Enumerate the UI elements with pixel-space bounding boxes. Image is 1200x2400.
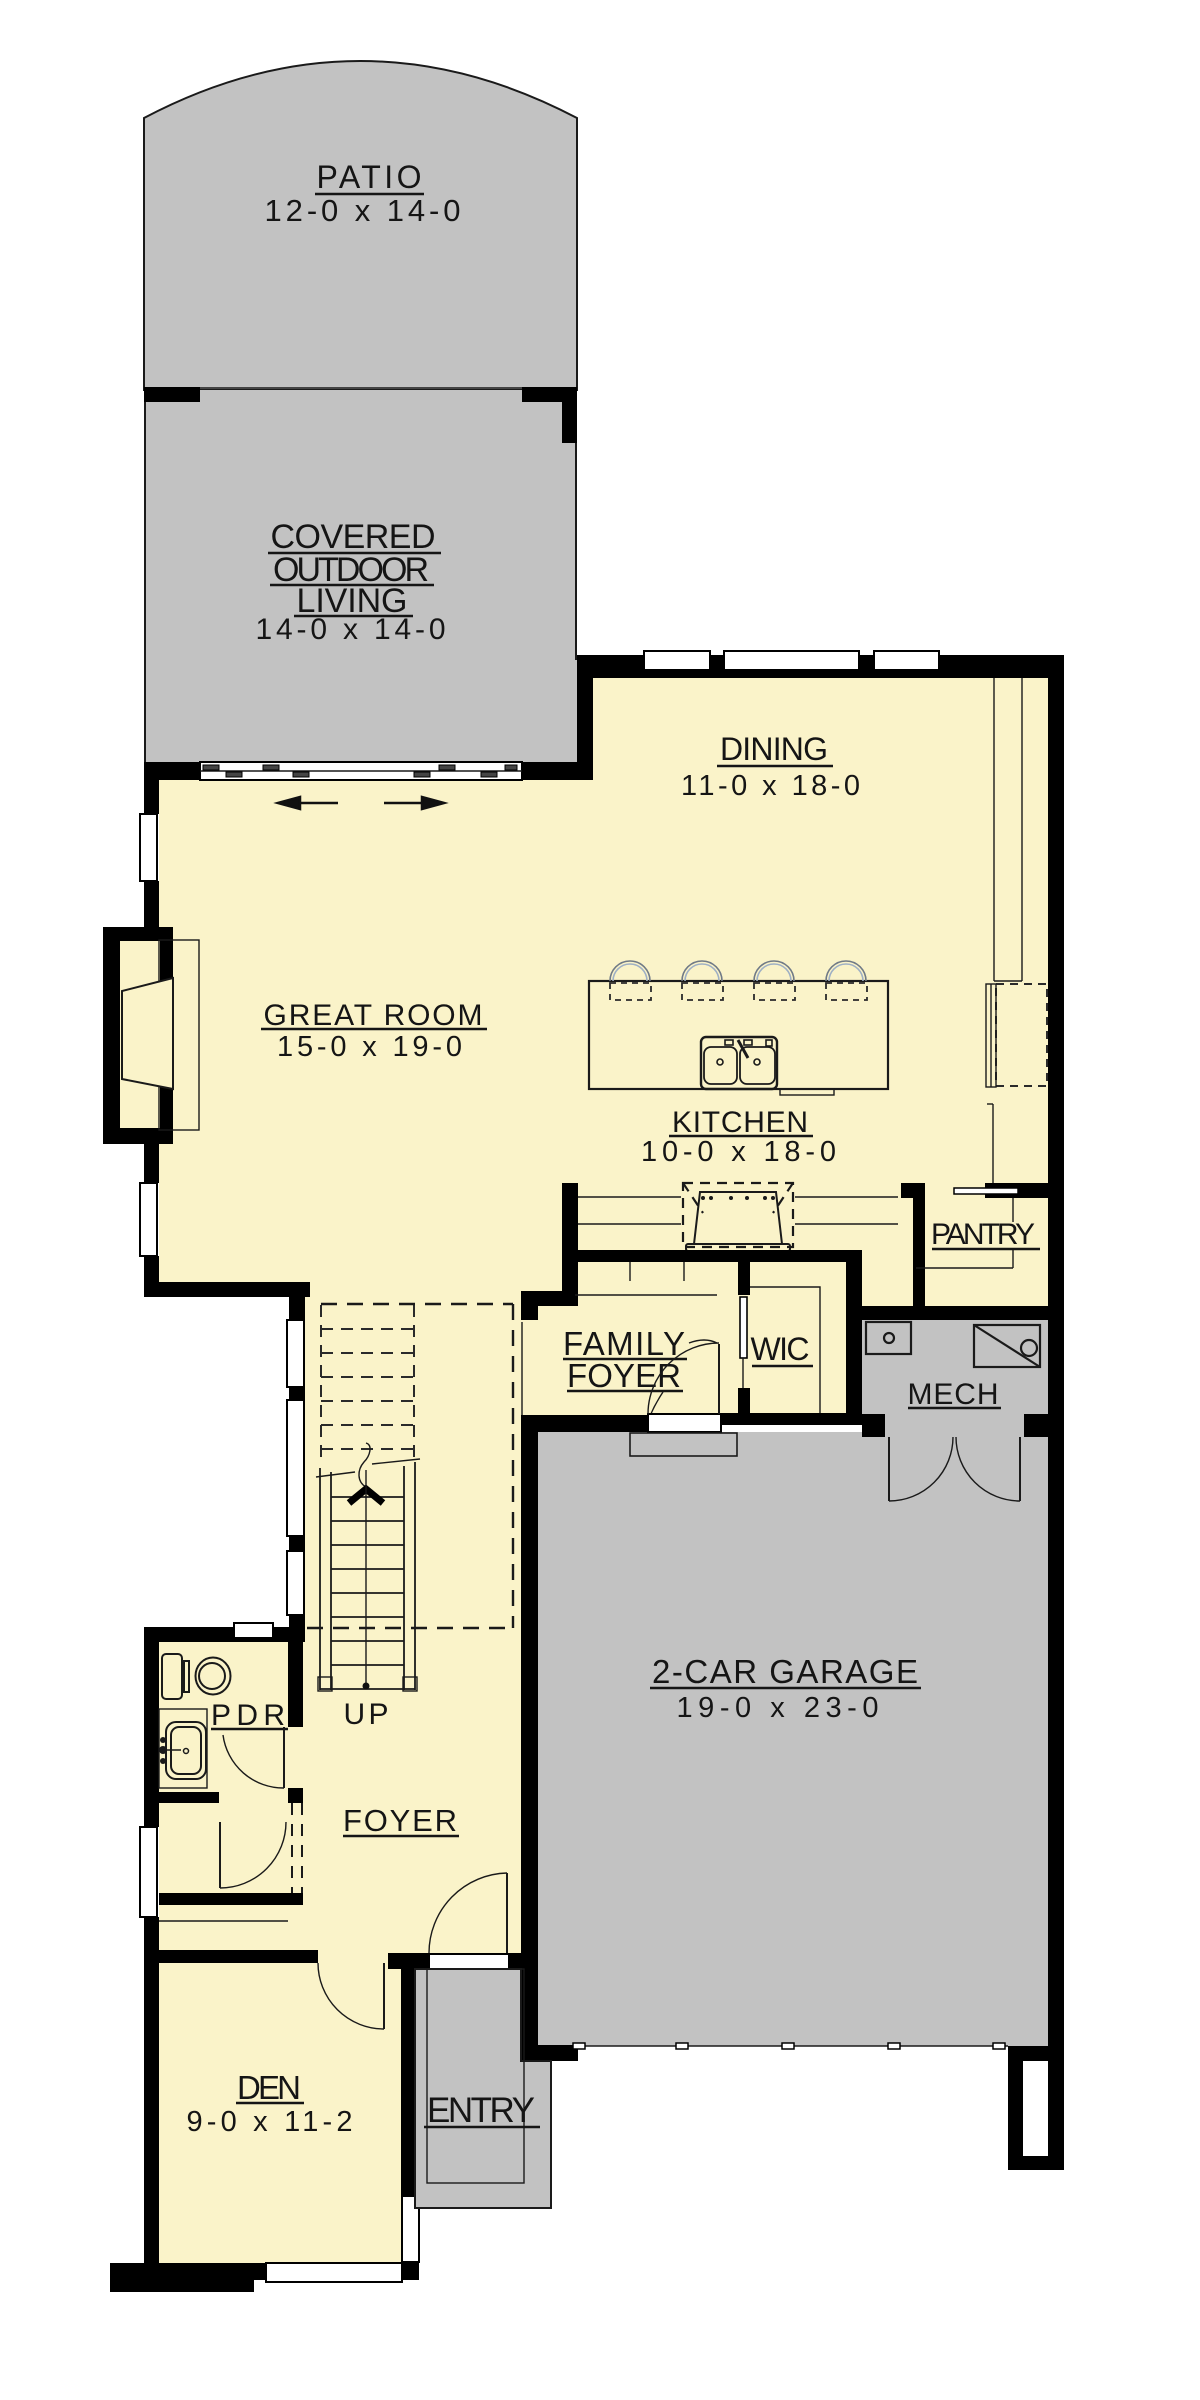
svg-text:2-CAR GARAGE: 2-CAR GARAGE bbox=[652, 1653, 920, 1690]
svg-text:12-0 x 14-0: 12-0 x 14-0 bbox=[265, 193, 462, 228]
svg-text:UP: UP bbox=[344, 1698, 391, 1731]
svg-text:DEN: DEN bbox=[237, 2069, 303, 2106]
svg-text:15-0 x 19-0: 15-0 x 19-0 bbox=[277, 1031, 463, 1063]
svg-text:11-0 x 18-0: 11-0 x 18-0 bbox=[681, 770, 861, 802]
svg-text:PATIO: PATIO bbox=[317, 159, 424, 195]
svg-text:GREAT ROOM: GREAT ROOM bbox=[264, 999, 485, 1032]
svg-text:FOYER: FOYER bbox=[567, 1357, 683, 1394]
svg-text:DINING: DINING bbox=[720, 731, 830, 767]
svg-text:MECH: MECH bbox=[908, 1378, 1001, 1411]
svg-text:KITCHEN: KITCHEN bbox=[672, 1106, 810, 1139]
svg-text:WIC: WIC bbox=[751, 1331, 812, 1367]
svg-text:14-0 x 14-0: 14-0 x 14-0 bbox=[256, 613, 447, 646]
svg-text:19-0 x 23-0: 19-0 x 23-0 bbox=[677, 1692, 880, 1724]
svg-text:10-0 x 18-0: 10-0 x 18-0 bbox=[641, 1136, 837, 1168]
svg-text:FOYER: FOYER bbox=[343, 1803, 459, 1838]
svg-text:PANTRY: PANTRY bbox=[931, 1218, 1037, 1251]
svg-text:ENTRY: ENTRY bbox=[427, 2091, 537, 2130]
svg-text:PDR: PDR bbox=[211, 1699, 287, 1732]
